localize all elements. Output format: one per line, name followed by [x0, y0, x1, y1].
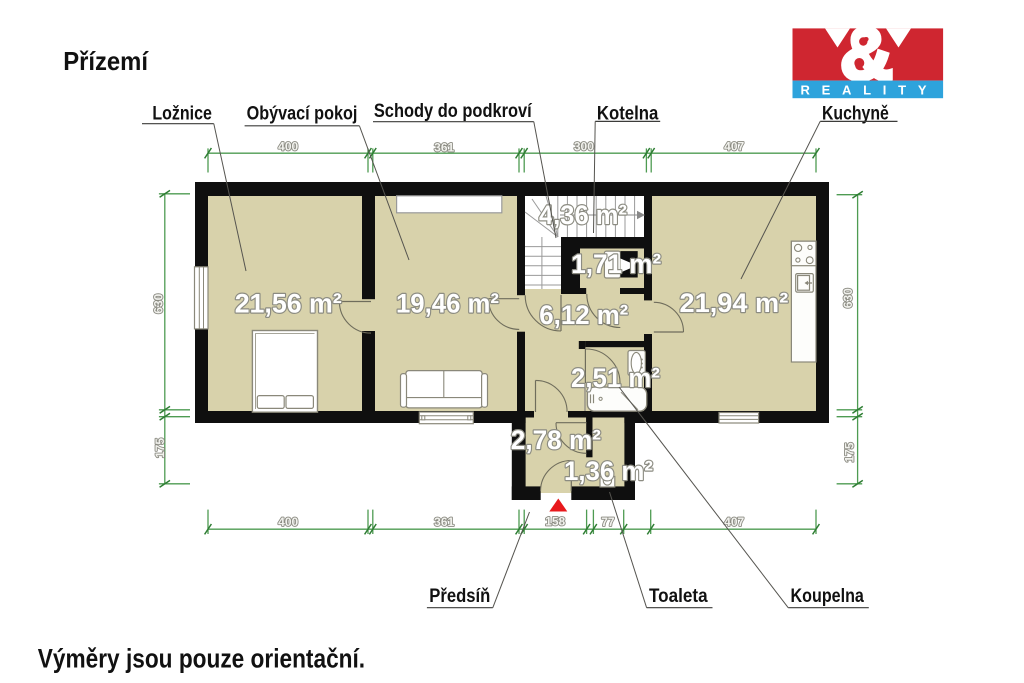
svg-text:407: 407	[724, 140, 744, 154]
svg-text:Obývací pokoj: Obývací pokoj	[247, 104, 358, 125]
svg-text:361: 361	[434, 515, 454, 529]
svg-text:77: 77	[601, 515, 615, 529]
svg-text:630: 630	[152, 293, 166, 313]
svg-text:21,94 m²: 21,94 m²	[680, 288, 789, 318]
svg-text:175: 175	[842, 442, 856, 462]
svg-text:158: 158	[545, 515, 565, 529]
svg-text:1,36 m²: 1,36 m²	[564, 456, 653, 486]
svg-text:Přízemí: Přízemí	[63, 46, 148, 76]
svg-text:4,36 m²: 4,36 m²	[539, 200, 627, 230]
svg-text:300: 300	[574, 140, 594, 154]
svg-text:21,56 m²: 21,56 m²	[235, 288, 342, 318]
svg-text:2,51 m²: 2,51 m²	[571, 363, 660, 393]
svg-text:6,12 m²: 6,12 m²	[539, 300, 628, 330]
svg-text:400: 400	[278, 140, 298, 154]
svg-text:19,46 m²: 19,46 m²	[396, 288, 499, 318]
svg-text:175: 175	[153, 438, 167, 458]
svg-text:1,71 m²: 1,71 m²	[571, 249, 661, 279]
svg-text:361: 361	[434, 140, 454, 154]
svg-text:Toaleta: Toaleta	[649, 586, 708, 607]
svg-text:Ložnice: Ložnice	[152, 104, 212, 125]
svg-text:Výměry jsou pouze orientační.: Výměry jsou pouze orientační.	[38, 644, 365, 674]
svg-text:2,78 m²: 2,78 m²	[511, 425, 601, 455]
svg-text:630: 630	[841, 288, 855, 308]
svg-text:407: 407	[724, 515, 744, 529]
svg-text:400: 400	[278, 515, 298, 529]
svg-text:Koupelna: Koupelna	[791, 586, 865, 607]
svg-text:Předsíň: Předsíň	[429, 586, 490, 607]
svg-text:Schody do podkroví: Schody do podkroví	[374, 101, 533, 122]
